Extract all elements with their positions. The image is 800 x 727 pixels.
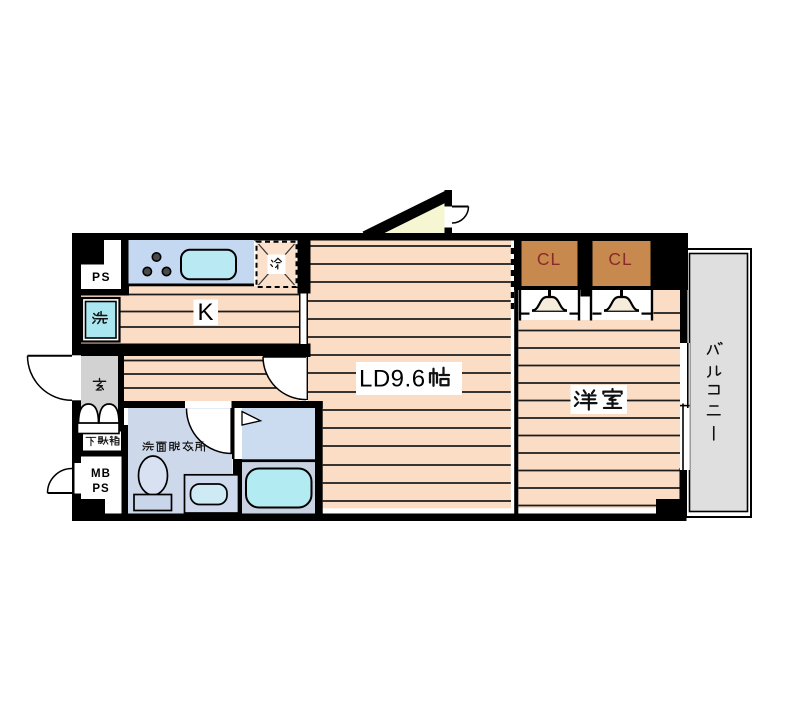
svg-text:CL: CL bbox=[537, 249, 561, 269]
svg-text:MB: MB bbox=[91, 468, 111, 480]
svg-text:PS: PS bbox=[92, 270, 111, 284]
svg-text:K: K bbox=[197, 299, 213, 326]
svg-text:PS: PS bbox=[92, 483, 109, 495]
svg-text:LD9.6: LD9.6 bbox=[359, 366, 426, 393]
svg-text:CL: CL bbox=[608, 249, 632, 269]
